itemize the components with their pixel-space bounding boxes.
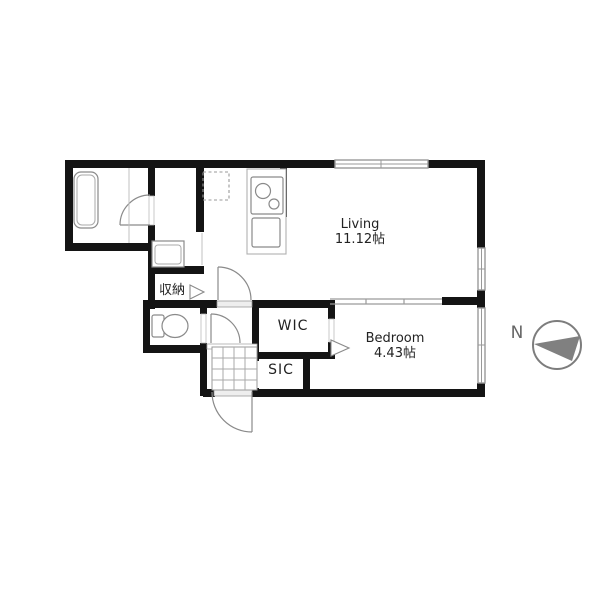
refrigerator-space-icon	[203, 172, 229, 200]
toilet-icon	[152, 315, 188, 338]
storage-label: 収納	[146, 283, 198, 298]
washing-machine-pan-icon	[152, 241, 184, 267]
sic-label: SIC	[246, 363, 316, 378]
north-label: N	[504, 326, 530, 341]
window-top-icon	[335, 160, 428, 168]
door-arc-bathroom-icon	[120, 195, 150, 225]
door-arc-toilet-icon	[211, 314, 240, 343]
door-swings	[120, 195, 256, 432]
floor-plan-drawing	[0, 0, 600, 600]
sink-icon	[252, 218, 280, 247]
living-room-size: 11.12帖	[290, 232, 430, 247]
door-arc-entrance-icon	[212, 392, 252, 432]
bathtub-icon	[74, 168, 129, 243]
bedroom-label: Bedroom 4.43帖	[325, 331, 465, 361]
window-living-right-icon	[478, 248, 485, 290]
wic-label: WIC	[258, 319, 328, 334]
floor-plan-canvas: Living 11.12帖 Bedroom 4.43帖 WIC SIC 収納 N	[0, 0, 600, 600]
window-bedroom-right-icon	[478, 308, 485, 383]
door-arc-hall-icon	[218, 267, 251, 300]
living-room-name: Living	[290, 217, 430, 232]
bedroom-name: Bedroom	[325, 331, 465, 346]
living-room-label: Living 11.12帖	[290, 217, 430, 247]
sliding-door-icon	[330, 299, 442, 304]
north-arrow-icon	[533, 321, 581, 369]
bedroom-size: 4.43帖	[325, 346, 465, 361]
stove-icon	[251, 177, 283, 214]
